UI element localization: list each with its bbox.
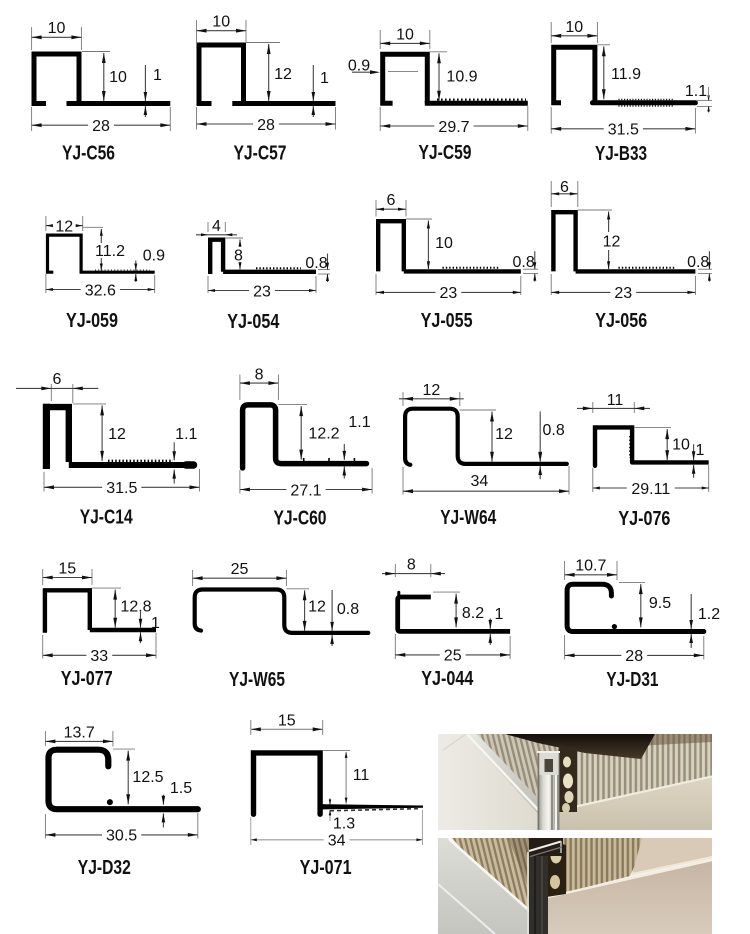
svg-text:31.5: 31.5	[106, 480, 137, 497]
svg-text:YJ-044: YJ-044	[421, 668, 474, 690]
svg-text:1.1: 1.1	[348, 414, 370, 431]
svg-text:1: 1	[320, 70, 329, 87]
svg-text:28: 28	[92, 118, 110, 135]
svg-text:YJ-D32: YJ-D32	[78, 857, 131, 879]
svg-text:25: 25	[231, 561, 249, 578]
svg-text:11.9: 11.9	[611, 66, 641, 83]
svg-text:30.5: 30.5	[106, 828, 137, 845]
svg-text:12: 12	[274, 66, 292, 83]
svg-text:10: 10	[212, 14, 230, 31]
svg-text:1.2: 1.2	[698, 606, 720, 623]
svg-text:28: 28	[625, 648, 643, 665]
svg-text:10.7: 10.7	[575, 558, 606, 575]
svg-text:YJ-C59: YJ-C59	[419, 142, 472, 164]
svg-text:4: 4	[212, 218, 221, 235]
svg-text:10: 10	[435, 235, 453, 252]
svg-text:8: 8	[234, 247, 243, 264]
svg-text:10: 10	[109, 69, 127, 86]
svg-text:13.7: 13.7	[64, 725, 95, 742]
svg-text:27.1: 27.1	[290, 482, 321, 499]
svg-text:31.5: 31.5	[608, 122, 639, 139]
svg-text:1: 1	[153, 67, 162, 84]
svg-text:6: 6	[387, 192, 396, 209]
svg-text:15: 15	[278, 713, 296, 730]
svg-text:10: 10	[48, 20, 66, 37]
svg-text:YJ-C57: YJ-C57	[234, 142, 287, 164]
svg-text:33: 33	[90, 648, 108, 665]
svg-text:1.1: 1.1	[685, 83, 707, 100]
svg-text:YJ-B33: YJ-B33	[595, 143, 647, 165]
svg-text:1.1: 1.1	[175, 426, 197, 443]
svg-text:12.8: 12.8	[120, 598, 151, 615]
svg-text:23: 23	[253, 283, 271, 300]
svg-text:1.3: 1.3	[333, 815, 355, 832]
svg-text:12: 12	[603, 234, 621, 251]
svg-text:23: 23	[440, 285, 458, 302]
svg-text:1: 1	[151, 615, 160, 632]
svg-text:YJ-W64: YJ-W64	[440, 507, 497, 529]
svg-text:0.8: 0.8	[687, 254, 709, 271]
svg-text:1: 1	[696, 442, 705, 459]
svg-text:YJ-076: YJ-076	[618, 508, 670, 530]
svg-text:29.7: 29.7	[438, 119, 469, 136]
svg-text:YJ-056: YJ-056	[595, 310, 647, 332]
svg-text:15: 15	[58, 561, 76, 578]
svg-text:0.8: 0.8	[542, 422, 564, 439]
svg-text:11.2: 11.2	[95, 243, 125, 260]
svg-text:YJ-C14: YJ-C14	[80, 507, 134, 529]
svg-text:0.9: 0.9	[143, 248, 165, 265]
svg-text:1.5: 1.5	[170, 780, 192, 797]
svg-text:11: 11	[607, 392, 624, 409]
svg-text:YJ-059: YJ-059	[66, 310, 118, 332]
svg-text:11: 11	[353, 767, 370, 784]
svg-text:10: 10	[672, 437, 690, 454]
svg-text:8: 8	[255, 367, 264, 384]
svg-text:32.6: 32.6	[85, 282, 116, 299]
svg-text:1: 1	[495, 606, 504, 623]
svg-text:12: 12	[495, 426, 513, 443]
svg-text:10: 10	[396, 27, 414, 44]
svg-text:12: 12	[423, 382, 441, 399]
svg-text:8: 8	[407, 557, 416, 574]
svg-text:0.8: 0.8	[512, 254, 534, 271]
svg-text:6: 6	[53, 371, 62, 388]
svg-text:23: 23	[614, 285, 632, 302]
svg-text:10.9: 10.9	[446, 68, 477, 85]
svg-text:12.2: 12.2	[308, 425, 339, 442]
svg-text:YJ-W65: YJ-W65	[229, 669, 285, 691]
svg-text:YJ-D31: YJ-D31	[606, 669, 658, 691]
svg-text:6: 6	[560, 179, 569, 196]
svg-text:12: 12	[108, 426, 126, 443]
svg-text:12: 12	[55, 218, 73, 235]
svg-text:0.8: 0.8	[337, 601, 359, 618]
svg-text:YJ-C60: YJ-C60	[274, 507, 327, 529]
svg-text:10: 10	[565, 19, 583, 36]
svg-text:12.5: 12.5	[132, 769, 163, 786]
svg-text:12: 12	[308, 598, 326, 615]
svg-text:29.11: 29.11	[631, 481, 670, 498]
svg-text:34: 34	[328, 833, 346, 850]
svg-text:YJ-054: YJ-054	[227, 311, 280, 333]
svg-text:25: 25	[444, 648, 462, 665]
svg-text:YJ-055: YJ-055	[421, 310, 473, 332]
svg-text:YJ-077: YJ-077	[61, 668, 113, 690]
svg-text:8.2: 8.2	[462, 605, 484, 622]
svg-text:28: 28	[257, 117, 275, 134]
svg-text:34: 34	[471, 473, 489, 490]
svg-text:9.5: 9.5	[649, 595, 671, 612]
svg-text:YJ-C56: YJ-C56	[62, 142, 115, 164]
svg-text:YJ-071: YJ-071	[300, 857, 352, 879]
